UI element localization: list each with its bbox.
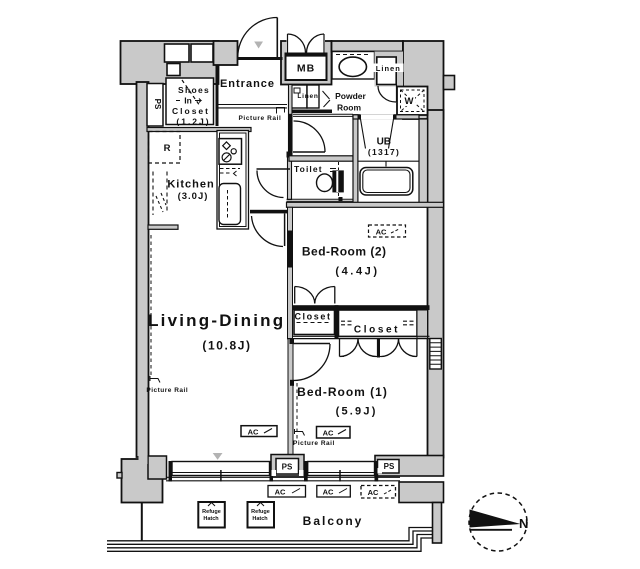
svg-text:AC: AC [368,488,379,497]
svg-text:AC: AC [323,429,334,438]
svg-text:Closet: Closet [172,106,210,116]
svg-text:Picture Rail: Picture Rail [293,440,335,447]
svg-text:Shoes: Shoes [178,85,210,95]
svg-text:R: R [164,143,171,154]
svg-text:(10.8J): (10.8J) [202,339,251,353]
svg-text:(4.4J): (4.4J) [335,265,379,277]
svg-text:(3.0J): (3.0J) [178,191,209,202]
svg-text:Room: Room [337,103,362,113]
svg-text:PS: PS [282,463,293,472]
svg-text:Refuge: Refuge [202,509,221,515]
svg-text:Closet: Closet [294,312,331,322]
svg-text:Living-Dining: Living-Dining [148,311,285,330]
svg-text:Picture Rail: Picture Rail [239,115,282,122]
svg-text:Linen: Linen [376,64,401,73]
svg-text:PS: PS [153,99,162,110]
svg-text:(5.9J): (5.9J) [336,406,378,418]
svg-text:Closet: Closet [354,325,400,336]
svg-text:Balcony: Balcony [303,514,364,528]
svg-text:N: N [519,516,528,531]
svg-text:AC: AC [376,228,387,237]
svg-text:Hatch: Hatch [203,516,219,522]
svg-text:Powder: Powder [335,91,366,101]
svg-text:In: In [184,96,192,106]
svg-text:AC: AC [248,428,259,437]
svg-text:MB: MB [297,63,315,75]
svg-text:AC: AC [275,488,286,497]
svg-text:Linen: Linen [297,93,318,100]
svg-text:W: W [405,96,414,107]
svg-text:Picture Rail: Picture Rail [146,387,188,394]
svg-text:Toilet: Toilet [294,164,323,174]
svg-text:(1317): (1317) [368,147,400,157]
svg-text:AC: AC [323,488,334,497]
svg-text:Entrance: Entrance [220,78,275,90]
svg-text:(1.2J): (1.2J) [176,117,210,127]
svg-text:Refuge: Refuge [251,509,270,515]
svg-text:Bed-Room (1): Bed-Room (1) [297,385,388,399]
svg-text:Kitchen: Kitchen [167,179,214,191]
svg-text:Hatch: Hatch [252,516,268,522]
svg-text:PS: PS [384,462,395,471]
svg-text:Bed-Room (2): Bed-Room (2) [302,244,387,258]
